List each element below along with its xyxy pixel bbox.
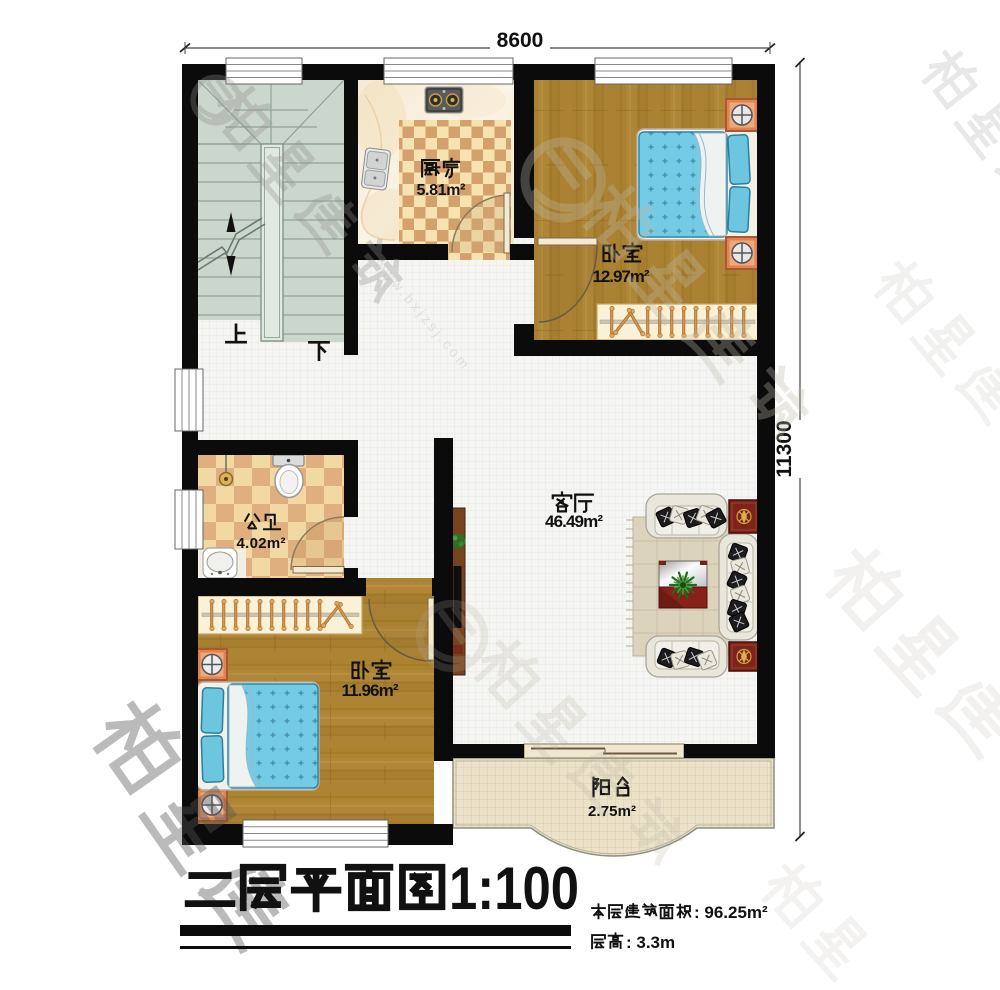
- svg-text:8600: 8600: [497, 29, 544, 52]
- svg-text:11.96m²: 11.96m²: [342, 681, 399, 700]
- svg-text:4.02m²: 4.02m²: [237, 535, 286, 552]
- svg-text:: 3.3m: : 3.3m: [626, 933, 675, 952]
- svg-text:5.81m²: 5.81m²: [417, 182, 466, 199]
- svg-text:12.97m²: 12.97m²: [593, 267, 650, 286]
- svg-text:: 96.25m²: : 96.25m²: [694, 903, 768, 922]
- svg-text:46.49m²: 46.49m²: [545, 512, 603, 531]
- svg-text:1:100: 1:100: [449, 855, 579, 922]
